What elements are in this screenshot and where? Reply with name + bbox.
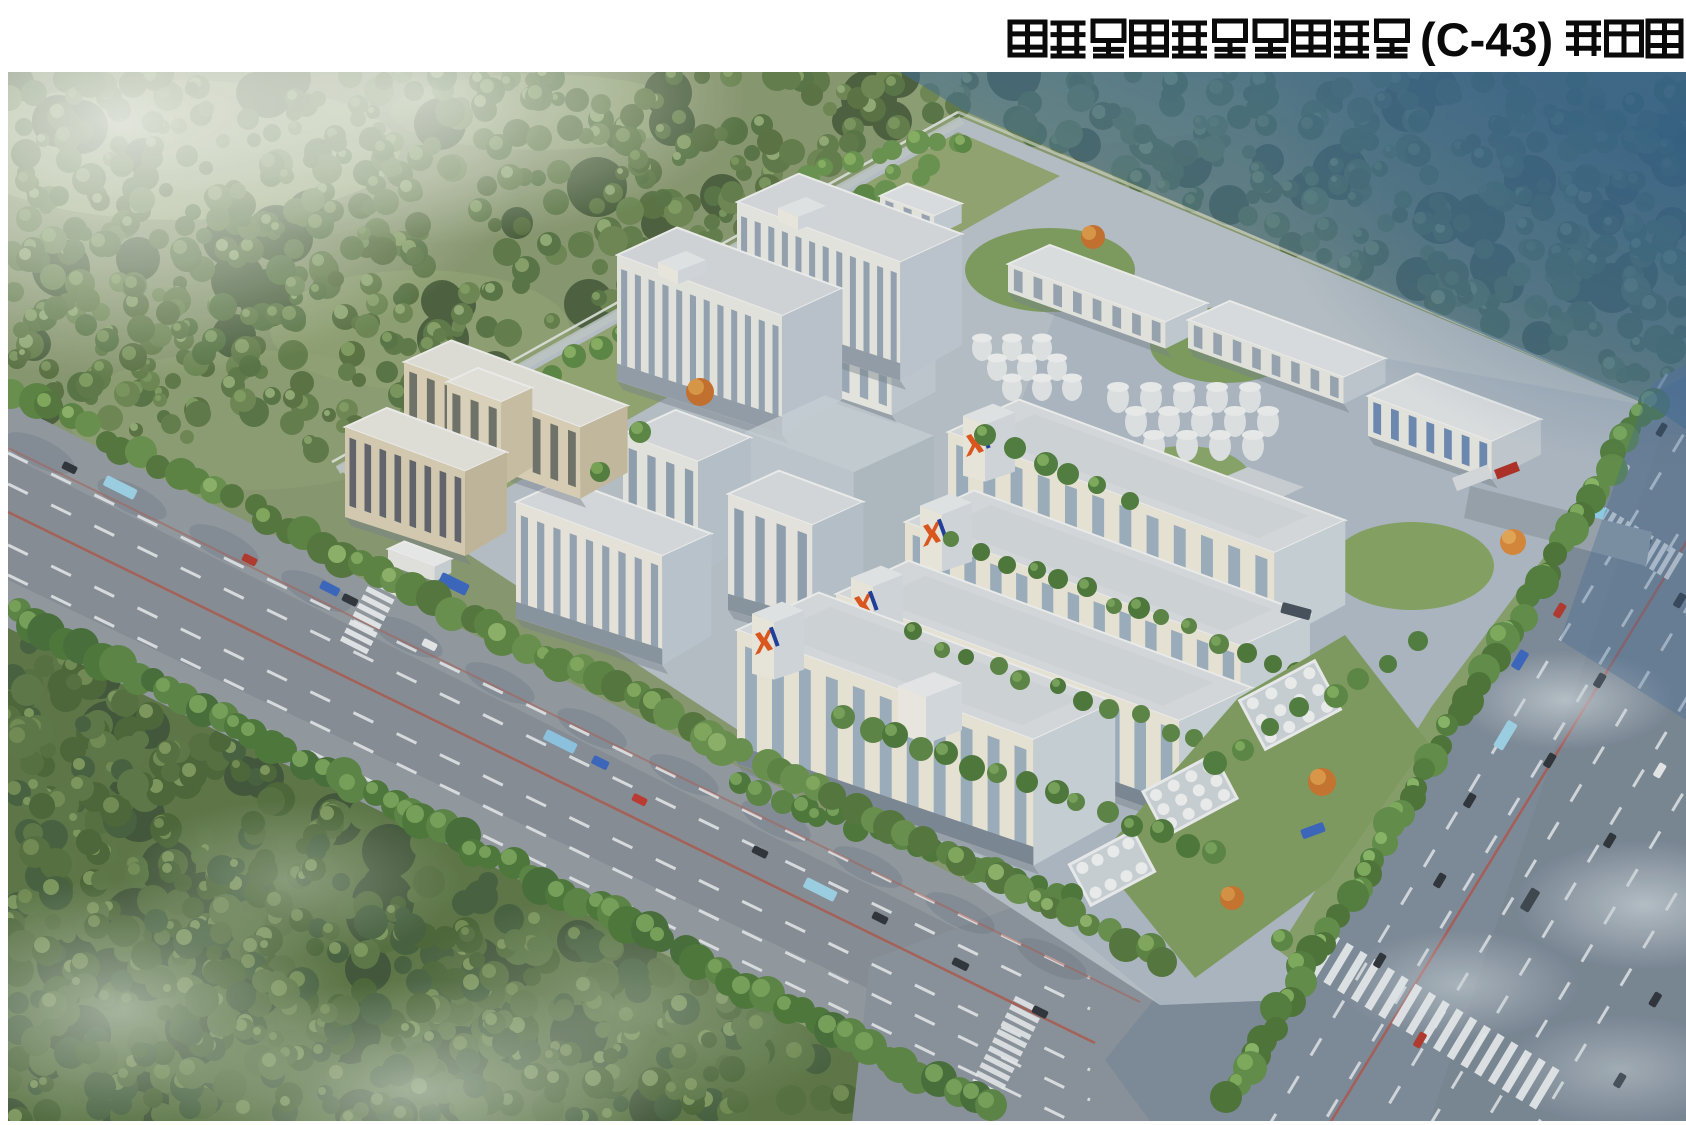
svg-text:(C-43): (C-43) xyxy=(1420,13,1553,66)
